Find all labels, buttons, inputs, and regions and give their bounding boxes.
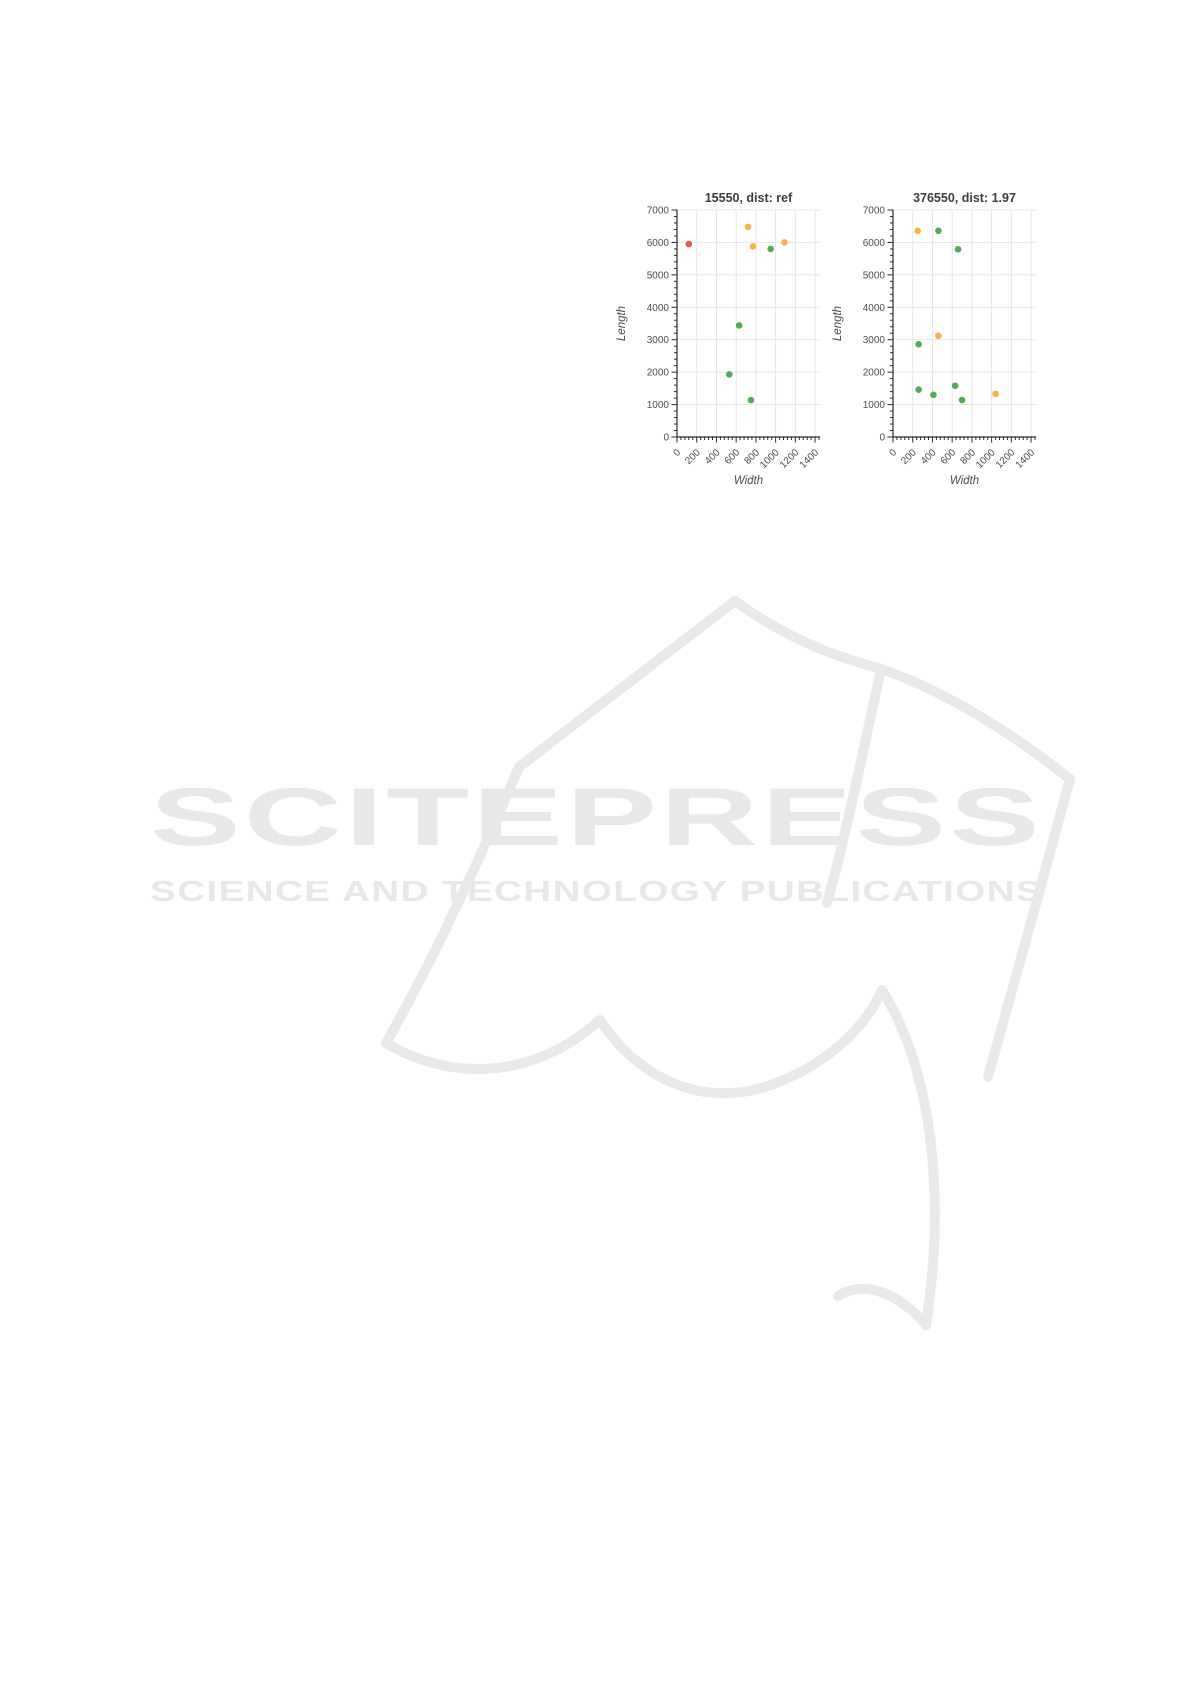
data-point bbox=[955, 246, 962, 253]
y-tick-label: 2000 bbox=[647, 368, 670, 379]
y-axis-label: Length bbox=[832, 306, 844, 341]
data-point bbox=[915, 386, 922, 393]
x-tick-label: 400 bbox=[703, 447, 723, 467]
document-page: 0100020003000400050006000700002004006008… bbox=[0, 0, 1191, 1684]
y-axis-label: Length bbox=[616, 306, 628, 341]
y-tick-label: 4000 bbox=[647, 303, 670, 314]
data-point bbox=[750, 243, 757, 250]
y-tick-label: 2000 bbox=[863, 368, 886, 379]
x-tick-label: 1000 bbox=[974, 447, 998, 471]
y-tick-label: 0 bbox=[879, 433, 885, 444]
figure-scatter-pair: 0100020003000400050006000700002004006008… bbox=[0, 0, 1191, 520]
data-point bbox=[992, 391, 999, 398]
data-point bbox=[767, 246, 774, 253]
data-point bbox=[726, 371, 733, 378]
grid-lines bbox=[893, 210, 1036, 437]
x-tick-label: 0 bbox=[887, 447, 899, 459]
data-point bbox=[935, 227, 942, 234]
series-cluster-green bbox=[726, 246, 774, 404]
y-tick-label: 6000 bbox=[863, 238, 886, 249]
x-tick-label: 400 bbox=[919, 447, 939, 467]
data-point bbox=[914, 227, 921, 234]
x-axis-label: Width bbox=[950, 475, 979, 487]
data-point bbox=[781, 239, 788, 246]
chart-title: 15550, dist: ref bbox=[705, 191, 793, 205]
data-point bbox=[959, 397, 966, 404]
data-point bbox=[745, 224, 752, 231]
watermark-subtitle: SCIENCE AND TECHNOLOGY PUBLICATIONS bbox=[150, 876, 1043, 908]
y-tick-label: 6000 bbox=[647, 238, 670, 249]
y-tick-label: 4000 bbox=[863, 303, 886, 314]
y-tick-label: 1000 bbox=[647, 400, 670, 411]
scatter-chart-comparison: 0100020003000400050006000700002004006008… bbox=[791, 182, 1041, 502]
data-point bbox=[915, 341, 922, 348]
x-tick-label: 0 bbox=[671, 447, 683, 459]
series-reference-point bbox=[686, 241, 693, 248]
series-cluster-green bbox=[915, 227, 965, 403]
x-tick-label: 1000 bbox=[758, 447, 782, 471]
axis-spines bbox=[893, 210, 1036, 437]
scatter-chart-reference: 0100020003000400050006000700002004006008… bbox=[575, 182, 825, 502]
y-tick-label: 5000 bbox=[863, 270, 886, 281]
open-book-icon bbox=[386, 601, 1070, 1325]
x-tick-label: 200 bbox=[899, 447, 919, 467]
data-point bbox=[686, 241, 693, 248]
chart-title: 376550, dist: 1.97 bbox=[913, 191, 1016, 205]
data-point bbox=[930, 392, 937, 399]
x-axis-label: Width bbox=[734, 475, 763, 487]
y-tick-label: 5000 bbox=[647, 270, 670, 281]
x-tick-label: 600 bbox=[723, 447, 743, 467]
series-cluster-orange bbox=[745, 224, 788, 250]
y-tick-label: 1000 bbox=[863, 400, 886, 411]
watermark-title: SCITEPRESS bbox=[150, 772, 1043, 863]
data-point bbox=[952, 382, 959, 389]
data-point bbox=[935, 333, 942, 340]
x-tick-label: 1200 bbox=[994, 447, 1018, 471]
y-tick-label: 7000 bbox=[647, 206, 670, 217]
y-tick-label: 3000 bbox=[647, 335, 670, 346]
x-tick-label: 1400 bbox=[1014, 447, 1038, 471]
y-tick-label: 7000 bbox=[863, 206, 886, 217]
data-point bbox=[748, 397, 755, 404]
x-tick-label: 600 bbox=[939, 447, 959, 467]
x-tick-label: 200 bbox=[683, 447, 703, 467]
y-tick-label: 3000 bbox=[863, 335, 886, 346]
data-point bbox=[736, 322, 743, 329]
axis-ticks bbox=[888, 210, 1036, 443]
y-tick-label: 0 bbox=[663, 433, 669, 444]
